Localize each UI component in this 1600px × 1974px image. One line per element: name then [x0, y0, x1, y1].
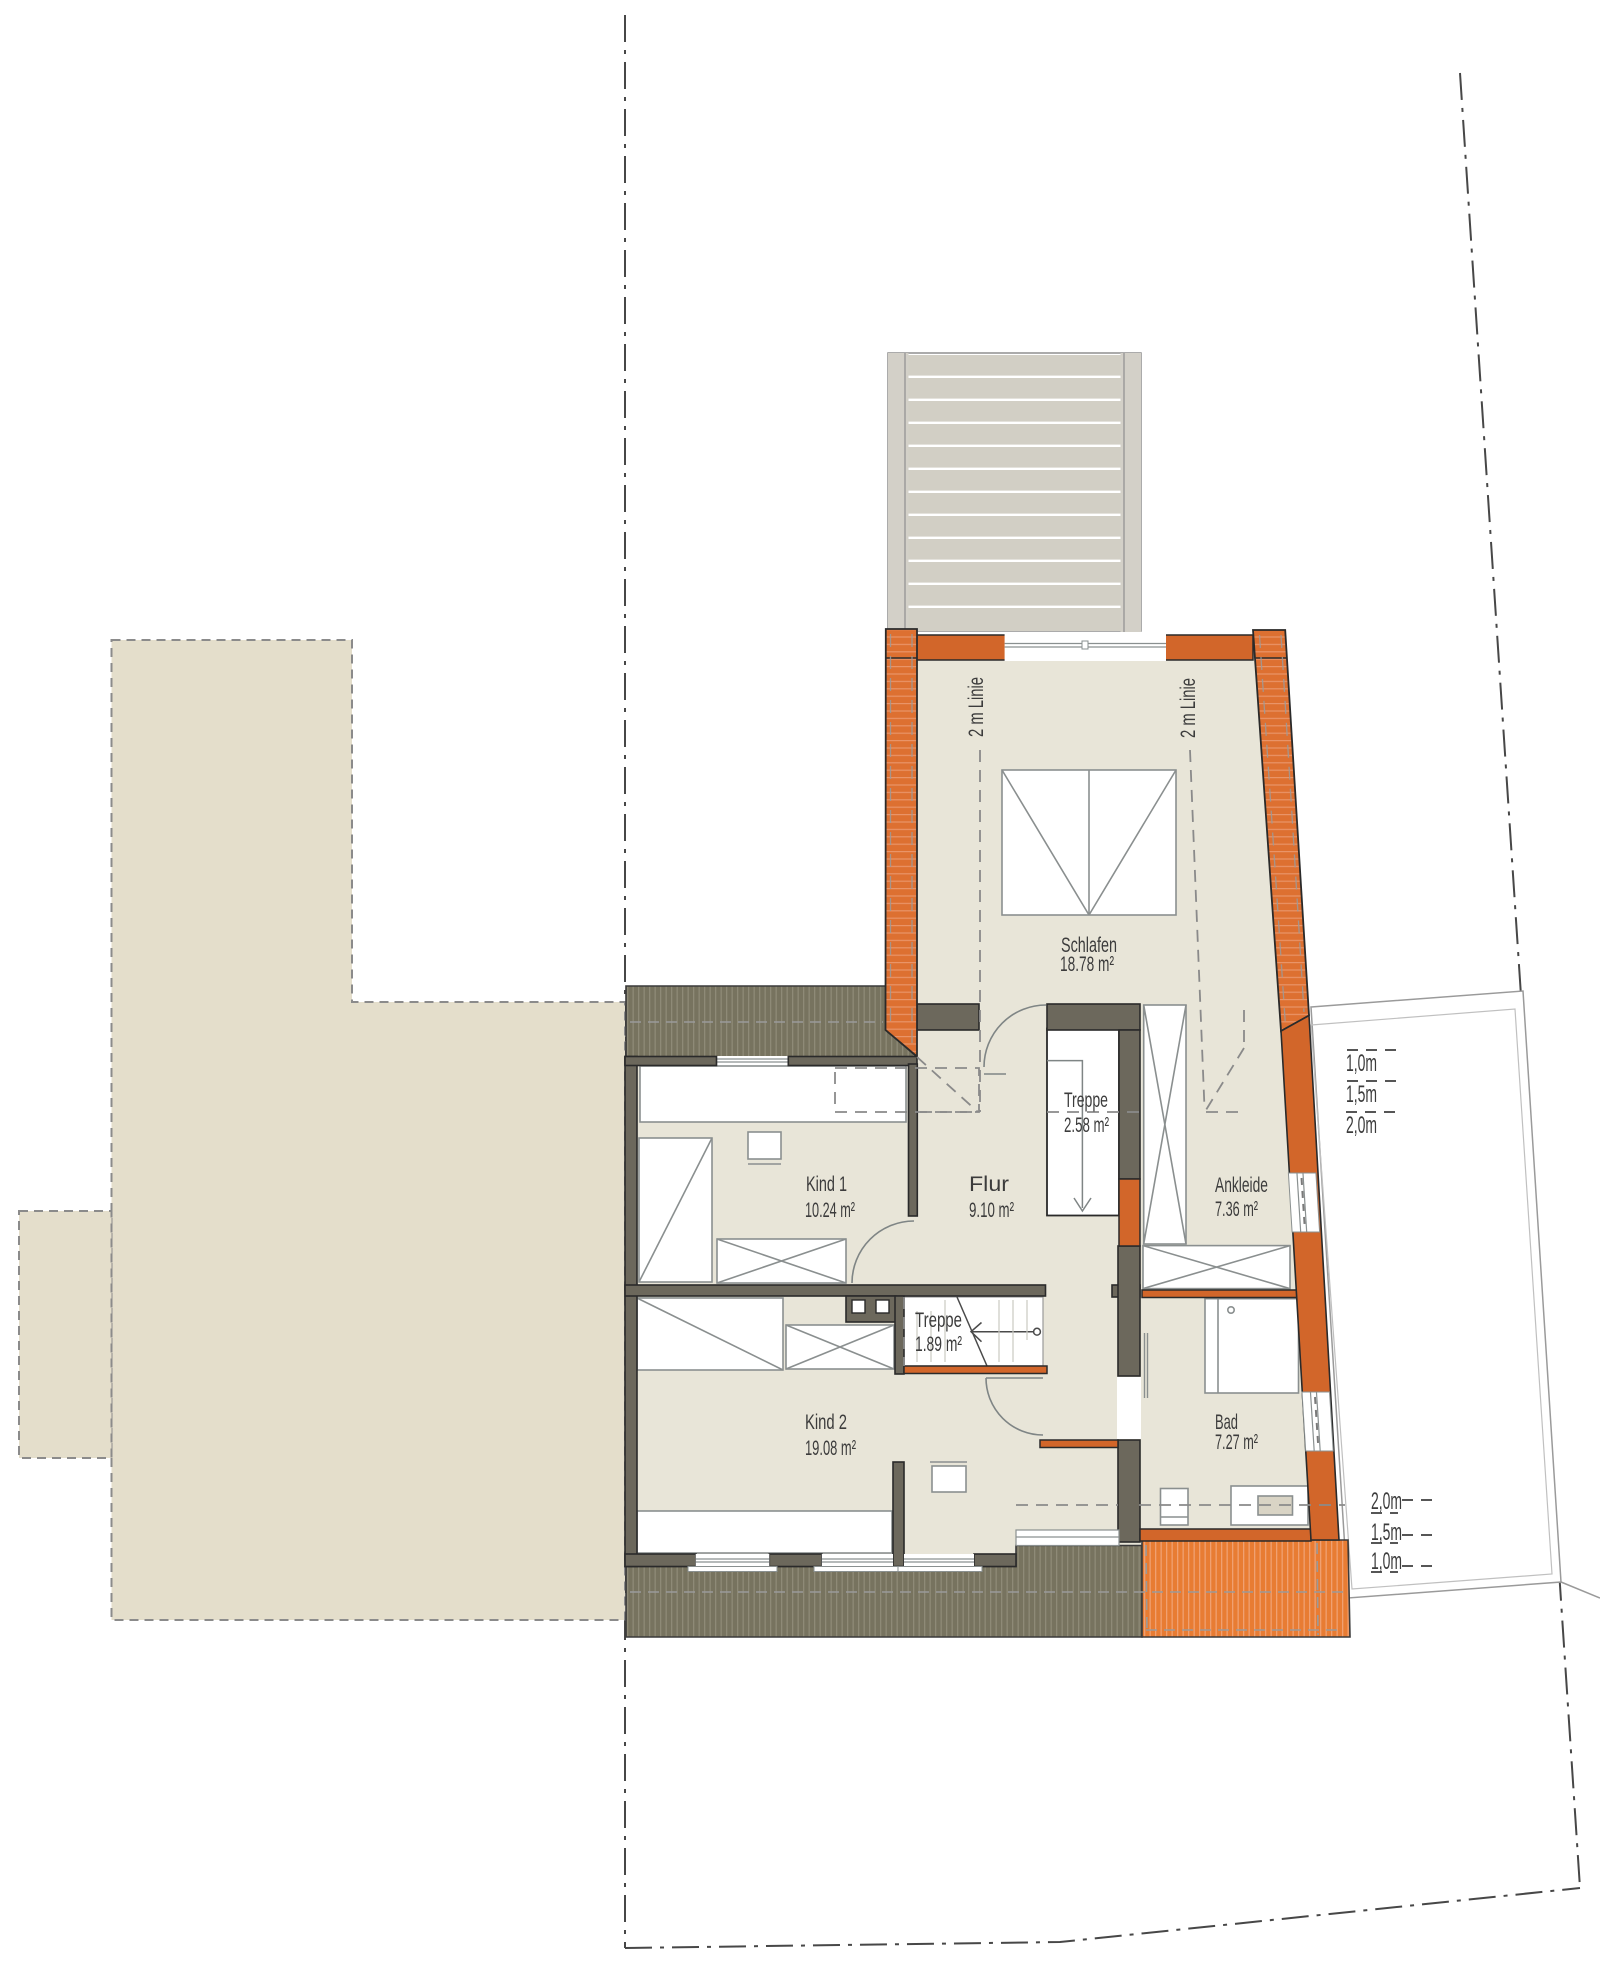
svg-text:Kind 2: Kind 2	[805, 1411, 847, 1434]
svg-text:Kind 1: Kind 1	[806, 1173, 847, 1196]
svg-text:1,5m: 1,5m	[1371, 1519, 1402, 1546]
svg-text:1,0m: 1,0m	[1346, 1050, 1377, 1077]
svg-text:7.27 m²: 7.27 m²	[1215, 1431, 1258, 1454]
svg-text:2 m Linie: 2 m Linie	[965, 677, 988, 737]
svg-text:9.10 m²: 9.10 m²	[969, 1199, 1014, 1222]
svg-text:19.08 m²: 19.08 m²	[805, 1437, 856, 1460]
svg-text:Treppe: Treppe	[915, 1309, 962, 1332]
svg-text:Flur: Flur	[969, 1173, 1009, 1196]
svg-text:1,0m: 1,0m	[1371, 1548, 1402, 1575]
svg-text:Treppe: Treppe	[1064, 1089, 1108, 1112]
svg-text:10.24 m²: 10.24 m²	[805, 1199, 855, 1222]
svg-text:1,5m: 1,5m	[1346, 1081, 1377, 1108]
svg-text:2,0m: 2,0m	[1346, 1112, 1377, 1139]
svg-text:18.78 m²: 18.78 m²	[1060, 953, 1114, 976]
svg-text:2 m Linie: 2 m Linie	[1177, 678, 1200, 738]
svg-text:1.89 m²: 1.89 m²	[915, 1333, 962, 1356]
svg-text:2,0m: 2,0m	[1371, 1488, 1402, 1515]
svg-text:2.58 m²: 2.58 m²	[1064, 1114, 1109, 1137]
svg-text:7.36 m²: 7.36 m²	[1215, 1198, 1258, 1221]
svg-text:Ankleide: Ankleide	[1215, 1174, 1268, 1197]
